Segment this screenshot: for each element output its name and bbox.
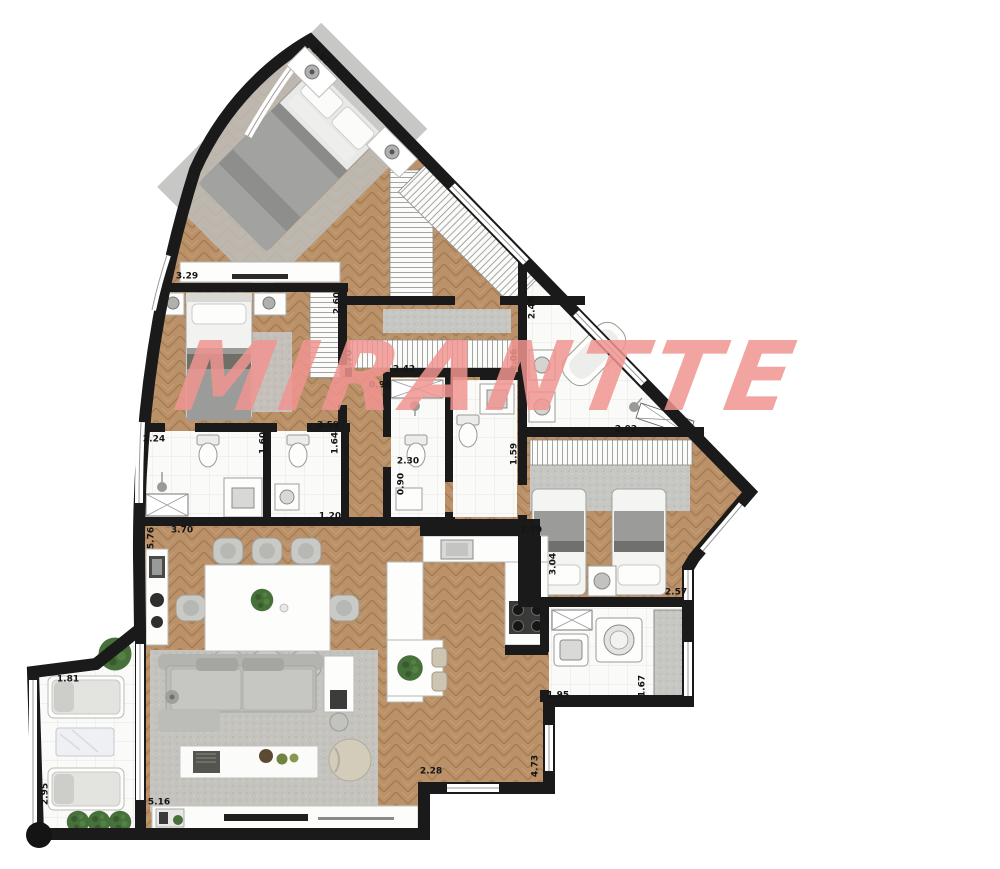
dimension-label: 5.76 <box>148 527 157 549</box>
dimension-label: 4.73 <box>532 755 541 777</box>
column <box>26 822 52 848</box>
dimension-label: 5.16 <box>148 799 170 808</box>
dimension-label: 0.90 <box>369 382 391 391</box>
dimension-label: 3.29 <box>176 273 198 282</box>
dimension-label: 1.20 <box>319 513 341 522</box>
dimension-label: 1.81 <box>57 676 79 685</box>
dimension-label: 3.70 <box>171 527 193 536</box>
dimension-label: 2.06 <box>511 349 520 371</box>
dimension-label: 1.60 <box>260 432 269 454</box>
dimension-label: 1.64 <box>332 432 341 454</box>
dimension-label: 2.95 <box>42 783 51 805</box>
dimension-label: 3.04 <box>550 553 559 575</box>
dimension-label: 1.70 <box>346 350 355 372</box>
dimension-label: 2.57 <box>665 589 687 598</box>
dimension-label: 2.79 <box>520 527 542 536</box>
dimension-label: 2.28 <box>420 768 442 777</box>
dimension-label: 3.59 <box>317 422 339 431</box>
dimension-label: 2.02 <box>615 426 637 435</box>
dimension-label: 2.24 <box>143 436 165 445</box>
dimension-label: 1.95 <box>547 692 569 701</box>
floor-plan: 2.823.292.601.702.420.902.482.062.022.24… <box>0 0 1000 869</box>
dimension-label: 1.67 <box>639 675 648 697</box>
dimension-label: 0.90 <box>398 473 407 495</box>
master-tv-console <box>180 262 340 282</box>
dimension-label: 2.30 <box>397 458 419 467</box>
dimension-label: 2.42 <box>393 366 415 375</box>
dimension-label: 2.48 <box>529 297 538 319</box>
dimension-label: 1.59 <box>511 443 520 465</box>
dimension-label: 2.60 <box>334 292 343 314</box>
